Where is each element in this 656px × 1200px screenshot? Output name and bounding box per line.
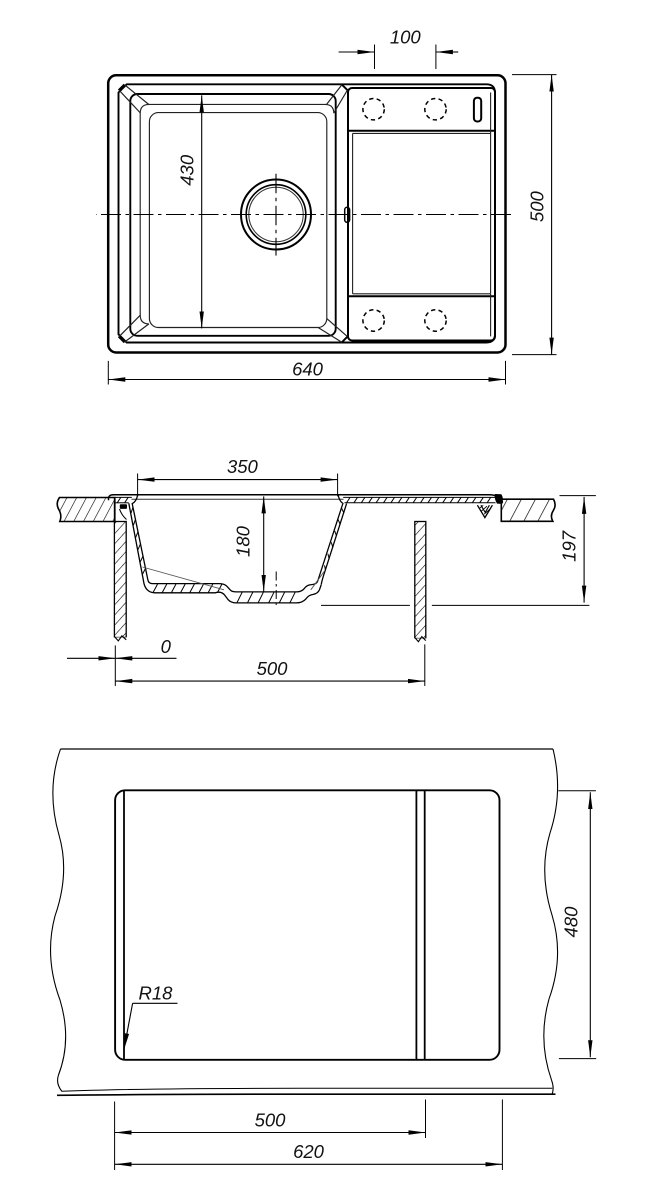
svg-text:430: 430 — [177, 154, 198, 186]
svg-text:350: 350 — [227, 456, 259, 477]
svg-text:500: 500 — [255, 1109, 287, 1130]
svg-text:0: 0 — [161, 636, 172, 657]
svg-text:100: 100 — [390, 26, 422, 47]
svg-text:620: 620 — [293, 1141, 325, 1162]
svg-text:180: 180 — [233, 525, 254, 557]
svg-text:500: 500 — [526, 190, 547, 222]
svg-text:500: 500 — [257, 658, 289, 679]
svg-text:197: 197 — [558, 530, 579, 562]
svg-text:640: 640 — [292, 358, 324, 379]
svg-text:480: 480 — [561, 906, 582, 938]
svg-text:R18: R18 — [139, 983, 174, 1004]
